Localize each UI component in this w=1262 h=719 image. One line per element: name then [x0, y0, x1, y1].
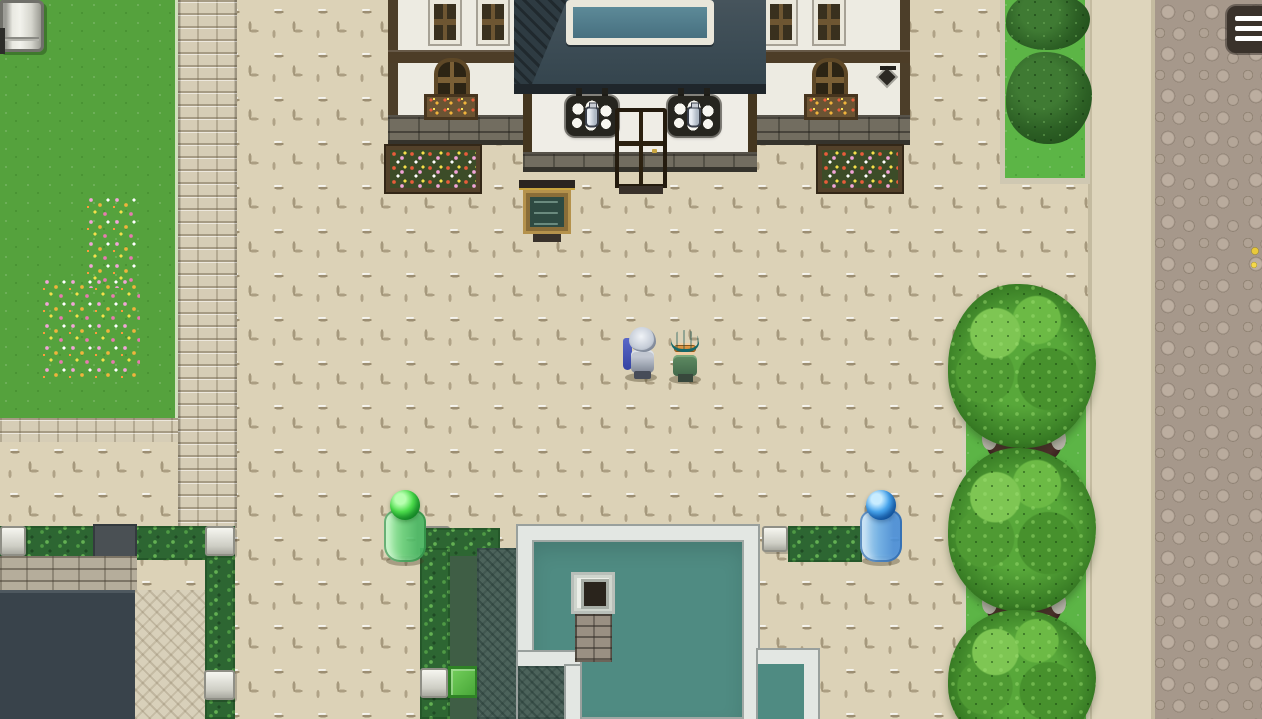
stone-path-vertical: [178, 0, 237, 528]
stone-post: [762, 526, 788, 552]
green-orb: [390, 490, 420, 520]
milk-jug-icon: [687, 106, 701, 127]
green-tile: [448, 666, 478, 698]
game-viewport: [0, 0, 1262, 719]
milk-shop-sign-right: [668, 96, 720, 136]
window-flower-box: [424, 94, 478, 120]
lantern-icon: [879, 69, 896, 86]
chimney-stack: [575, 614, 612, 662]
npc-teal-haired-villager[interactable]: [666, 328, 704, 386]
chimney-opening: [584, 582, 606, 606]
rock-pavement: [1155, 0, 1262, 719]
tree-canopy: [948, 448, 1096, 612]
blue-orb: [866, 490, 896, 520]
window-flower-box: [804, 94, 858, 120]
villager-hair: [671, 330, 699, 352]
milk-shop-sign-left: [566, 96, 618, 136]
stone-ledge: [0, 418, 178, 442]
stone-wall: [0, 556, 137, 592]
stone-post: [204, 670, 235, 700]
hamburger-menu-icon: [1235, 16, 1262, 21]
notice-board-base: [533, 234, 561, 242]
notice-board[interactable]: [523, 190, 571, 234]
upper-window: [814, 0, 844, 44]
yellow-flowers: [1248, 244, 1262, 274]
roof-left-wing: [477, 548, 518, 719]
roof-eave: [514, 84, 766, 94]
roof-trim-step: [518, 652, 580, 666]
blue-slime-barrel[interactable]: [858, 490, 904, 568]
flower-cluster: [86, 196, 138, 288]
stone-post: [205, 526, 235, 556]
flower-cluster: [42, 278, 140, 380]
bush: [1006, 52, 1092, 144]
menu-button[interactable]: [1227, 6, 1262, 53]
milk-jug-icon: [585, 106, 599, 127]
hedge-band: [788, 526, 862, 562]
stone-post: [420, 668, 448, 698]
knight-armor: [631, 350, 654, 373]
ground-flower-planter: [386, 146, 480, 192]
hamburger-menu-icon: [1235, 36, 1262, 41]
path-right: [1088, 0, 1155, 719]
knight-hair: [629, 327, 656, 352]
notice-board-panel: [530, 197, 564, 227]
green-slime-barrel[interactable]: [382, 490, 428, 568]
roof-right-extension: [758, 650, 818, 719]
roof-skylight: [566, 0, 714, 45]
roof-trim-step: [566, 666, 580, 719]
roof-slope-corner: [518, 666, 566, 719]
ground-flower-planter: [818, 146, 902, 192]
shop-door[interactable]: [615, 108, 667, 188]
wall-lantern: [874, 64, 898, 98]
dark-rooftop: [0, 590, 135, 719]
upper-window: [478, 0, 508, 44]
cabinet-shadow: [0, 28, 5, 54]
white-cabinet: [0, 0, 44, 52]
npc-silver-haired-knight[interactable]: [622, 326, 660, 384]
villager-coat: [673, 355, 697, 376]
upper-window: [766, 0, 796, 44]
upper-window: [430, 0, 460, 44]
cabinet-shelf-line: [5, 37, 39, 41]
notice-board-top: [519, 180, 575, 190]
knight-legs: [634, 371, 651, 379]
pavement-strip: [135, 590, 207, 719]
villager-legs: [678, 374, 693, 382]
stone-post: [0, 526, 26, 556]
door-step: [619, 186, 663, 194]
tree-canopy: [948, 284, 1096, 448]
hamburger-menu-icon: [1235, 26, 1262, 31]
chimney-cap: [571, 572, 615, 614]
